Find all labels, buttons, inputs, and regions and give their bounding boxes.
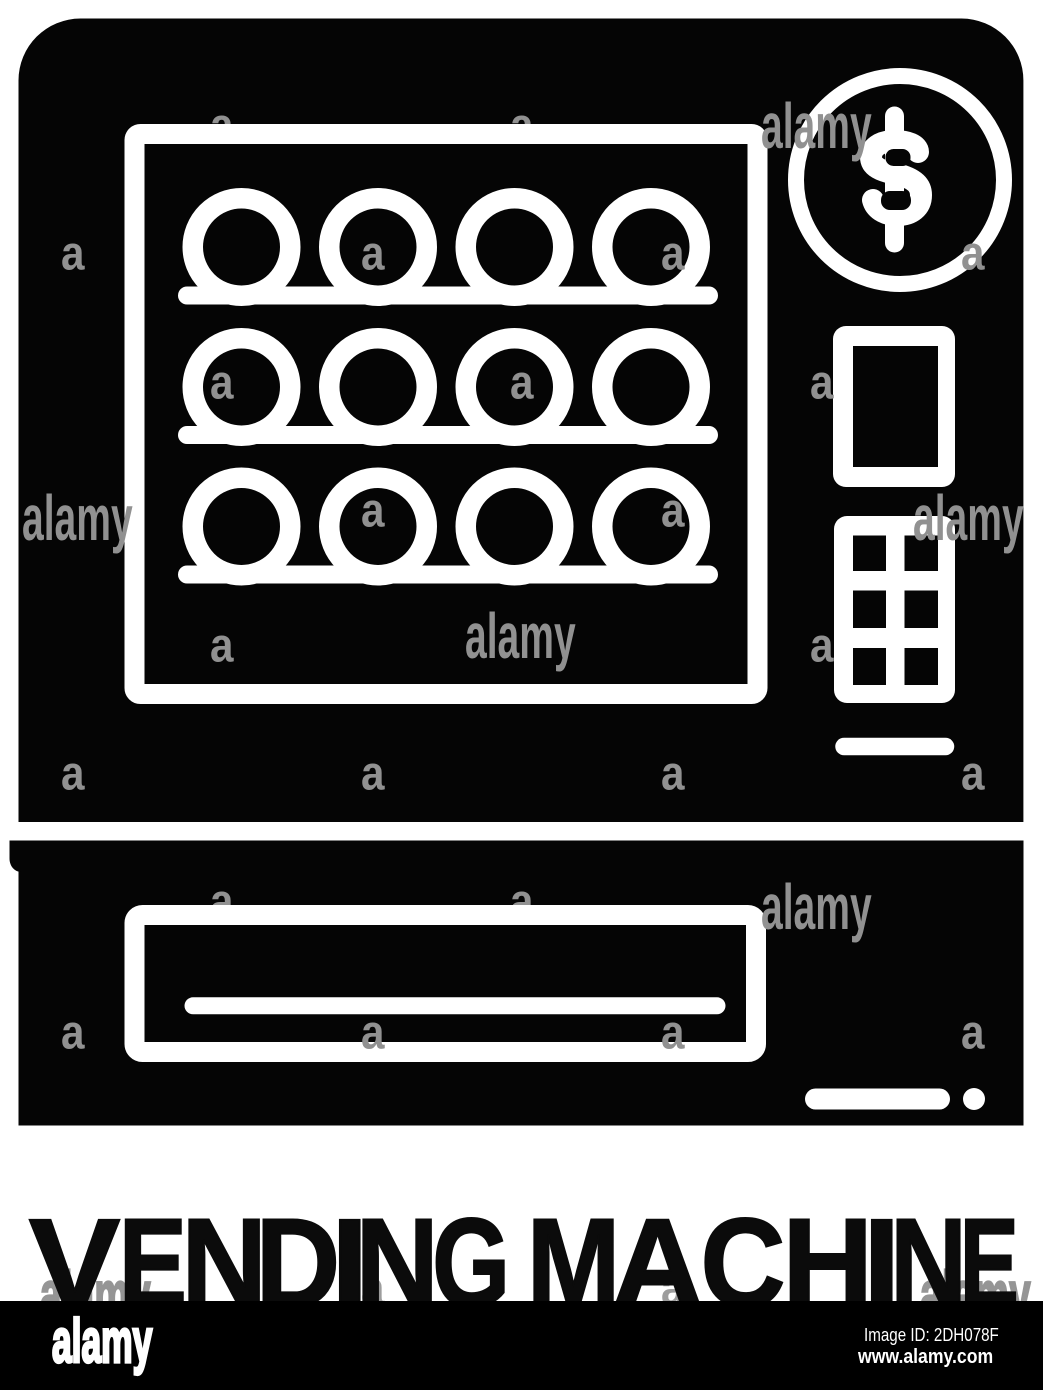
svg-text:a: a: [810, 618, 834, 672]
svg-text:a: a: [810, 355, 834, 409]
svg-text:a: a: [210, 355, 234, 409]
svg-text:a: a: [61, 226, 85, 280]
svg-text:a: a: [361, 746, 385, 800]
svg-text:a: a: [361, 1005, 385, 1059]
svg-text:a: a: [661, 1005, 685, 1059]
svg-text:alamy: alamy: [761, 872, 872, 943]
svg-text:a: a: [510, 355, 534, 409]
svg-text:alamy: alamy: [465, 601, 576, 672]
svg-text:alamy: alamy: [761, 91, 872, 162]
svg-text:a: a: [361, 483, 385, 537]
svg-text:a: a: [661, 483, 685, 537]
svg-text:a: a: [961, 226, 985, 280]
svg-text:www.alamy.com: www.alamy.com: [857, 1346, 993, 1369]
svg-text:alamy: alamy: [22, 483, 133, 554]
svg-text:a: a: [210, 618, 234, 672]
svg-text:a: a: [61, 1005, 85, 1059]
svg-text:Image ID: 2DH078F: Image ID: 2DH078F: [864, 1325, 999, 1346]
svg-text:a: a: [661, 746, 685, 800]
svg-text:alamy: alamy: [913, 483, 1024, 554]
svg-text:a: a: [961, 1005, 985, 1059]
svg-text:a: a: [61, 746, 85, 800]
svg-text:a: a: [661, 226, 685, 280]
svg-text:a: a: [361, 226, 385, 280]
svg-text:alamy: alamy: [52, 1307, 153, 1376]
svg-text:a: a: [961, 746, 985, 800]
